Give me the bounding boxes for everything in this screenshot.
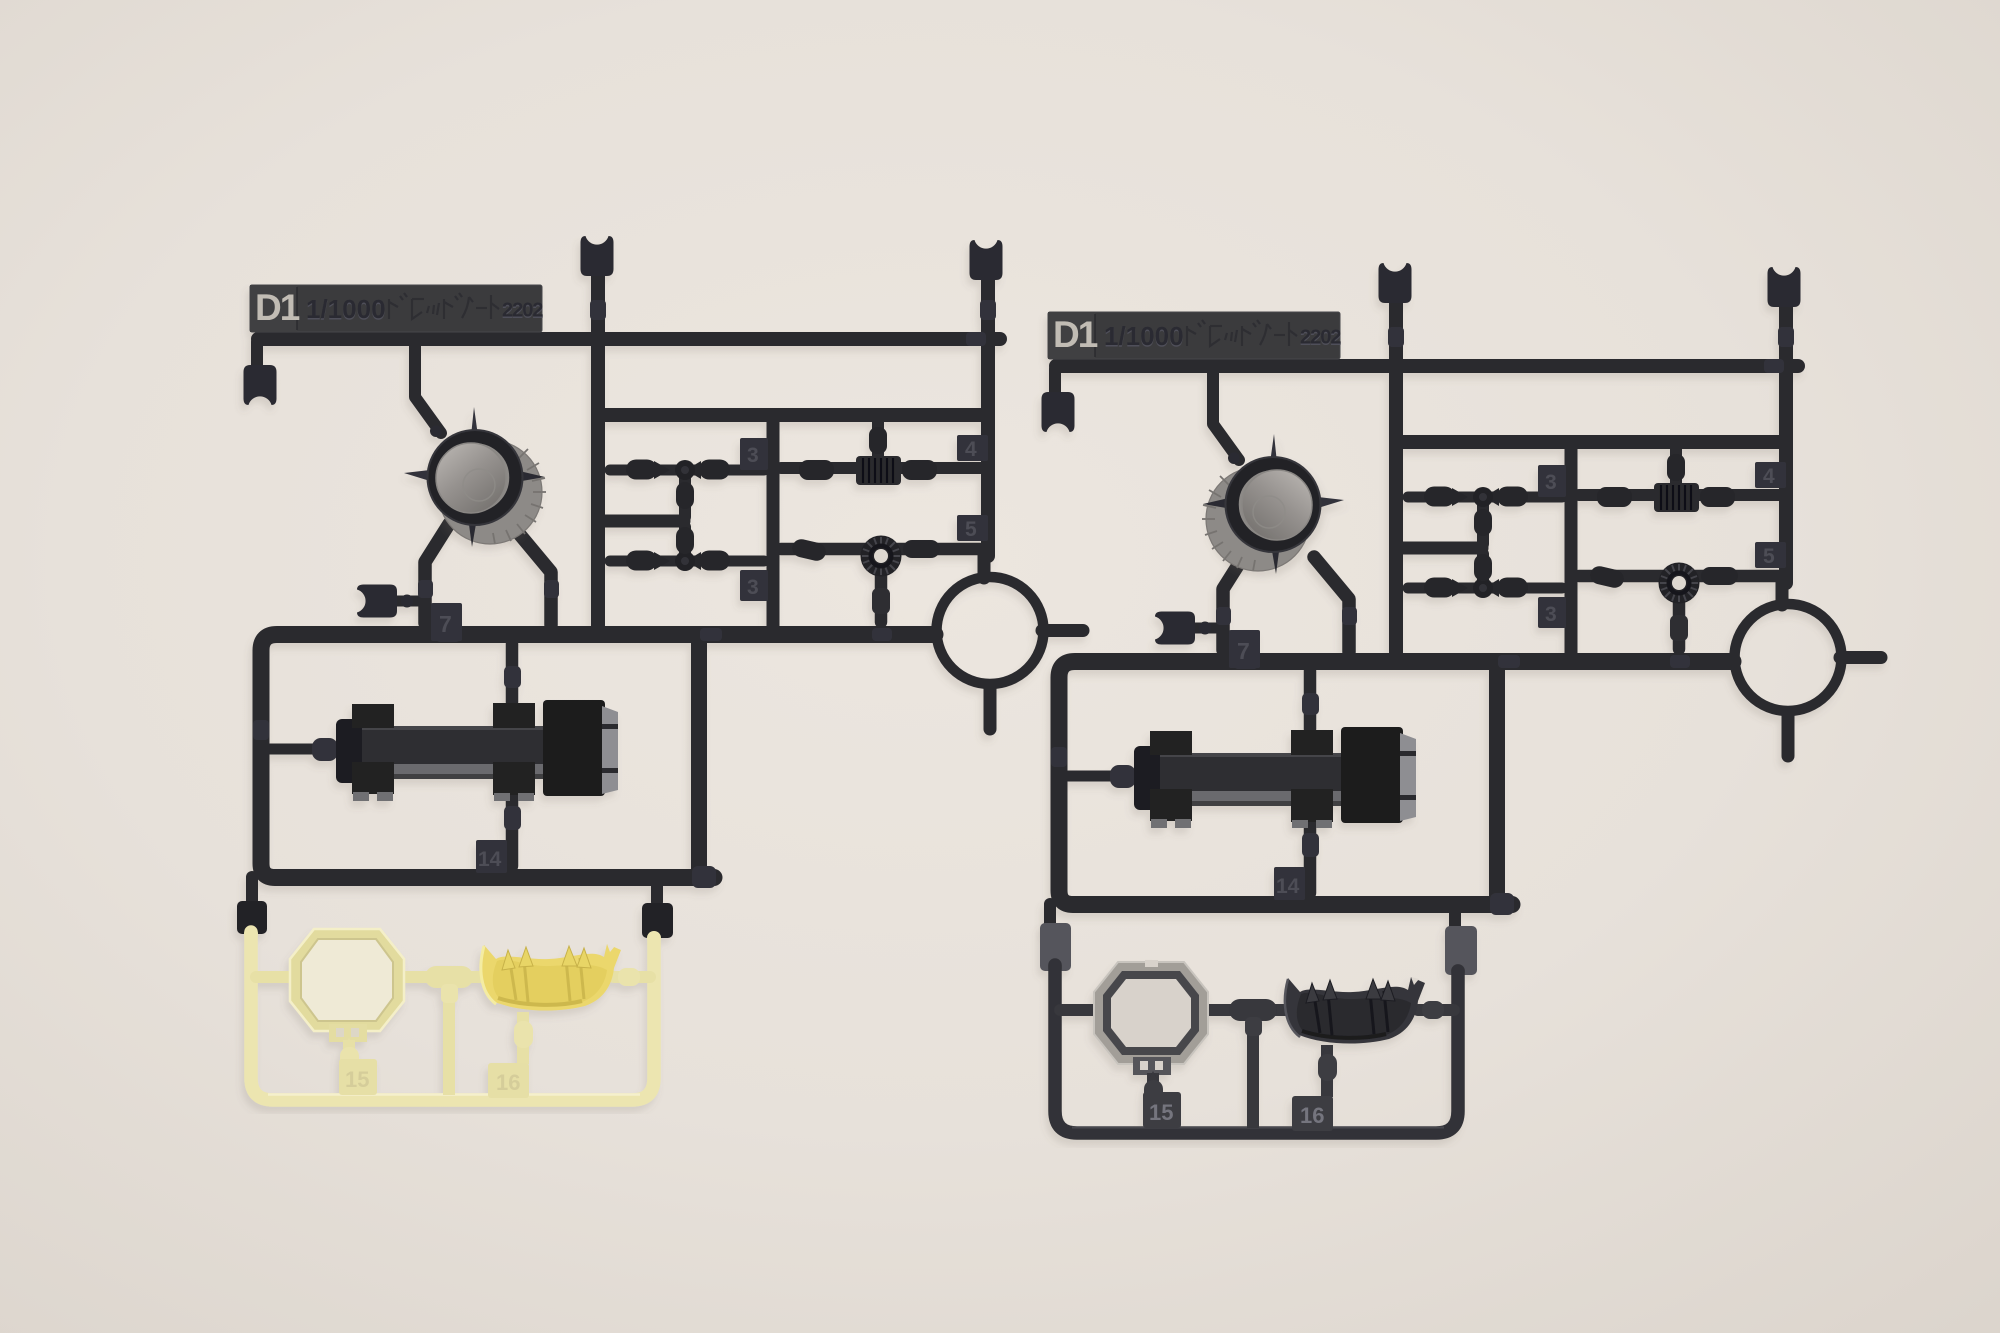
svg-text:15: 15 [1149,1100,1173,1125]
svg-text:3: 3 [747,576,759,599]
svg-text:15: 15 [345,1067,369,1092]
svg-text:16: 16 [496,1070,520,1095]
svg-text:4: 4 [965,438,977,461]
svg-text:1/1000: 1/1000 [306,294,386,324]
svg-text:3: 3 [747,444,759,467]
svg-text:14: 14 [478,848,502,871]
svg-text:5: 5 [965,518,977,541]
svg-text:7: 7 [439,611,452,637]
svg-text:16: 16 [1300,1103,1324,1128]
svg-text:D1: D1 [255,287,300,328]
svg-text:2202: 2202 [502,300,543,322]
